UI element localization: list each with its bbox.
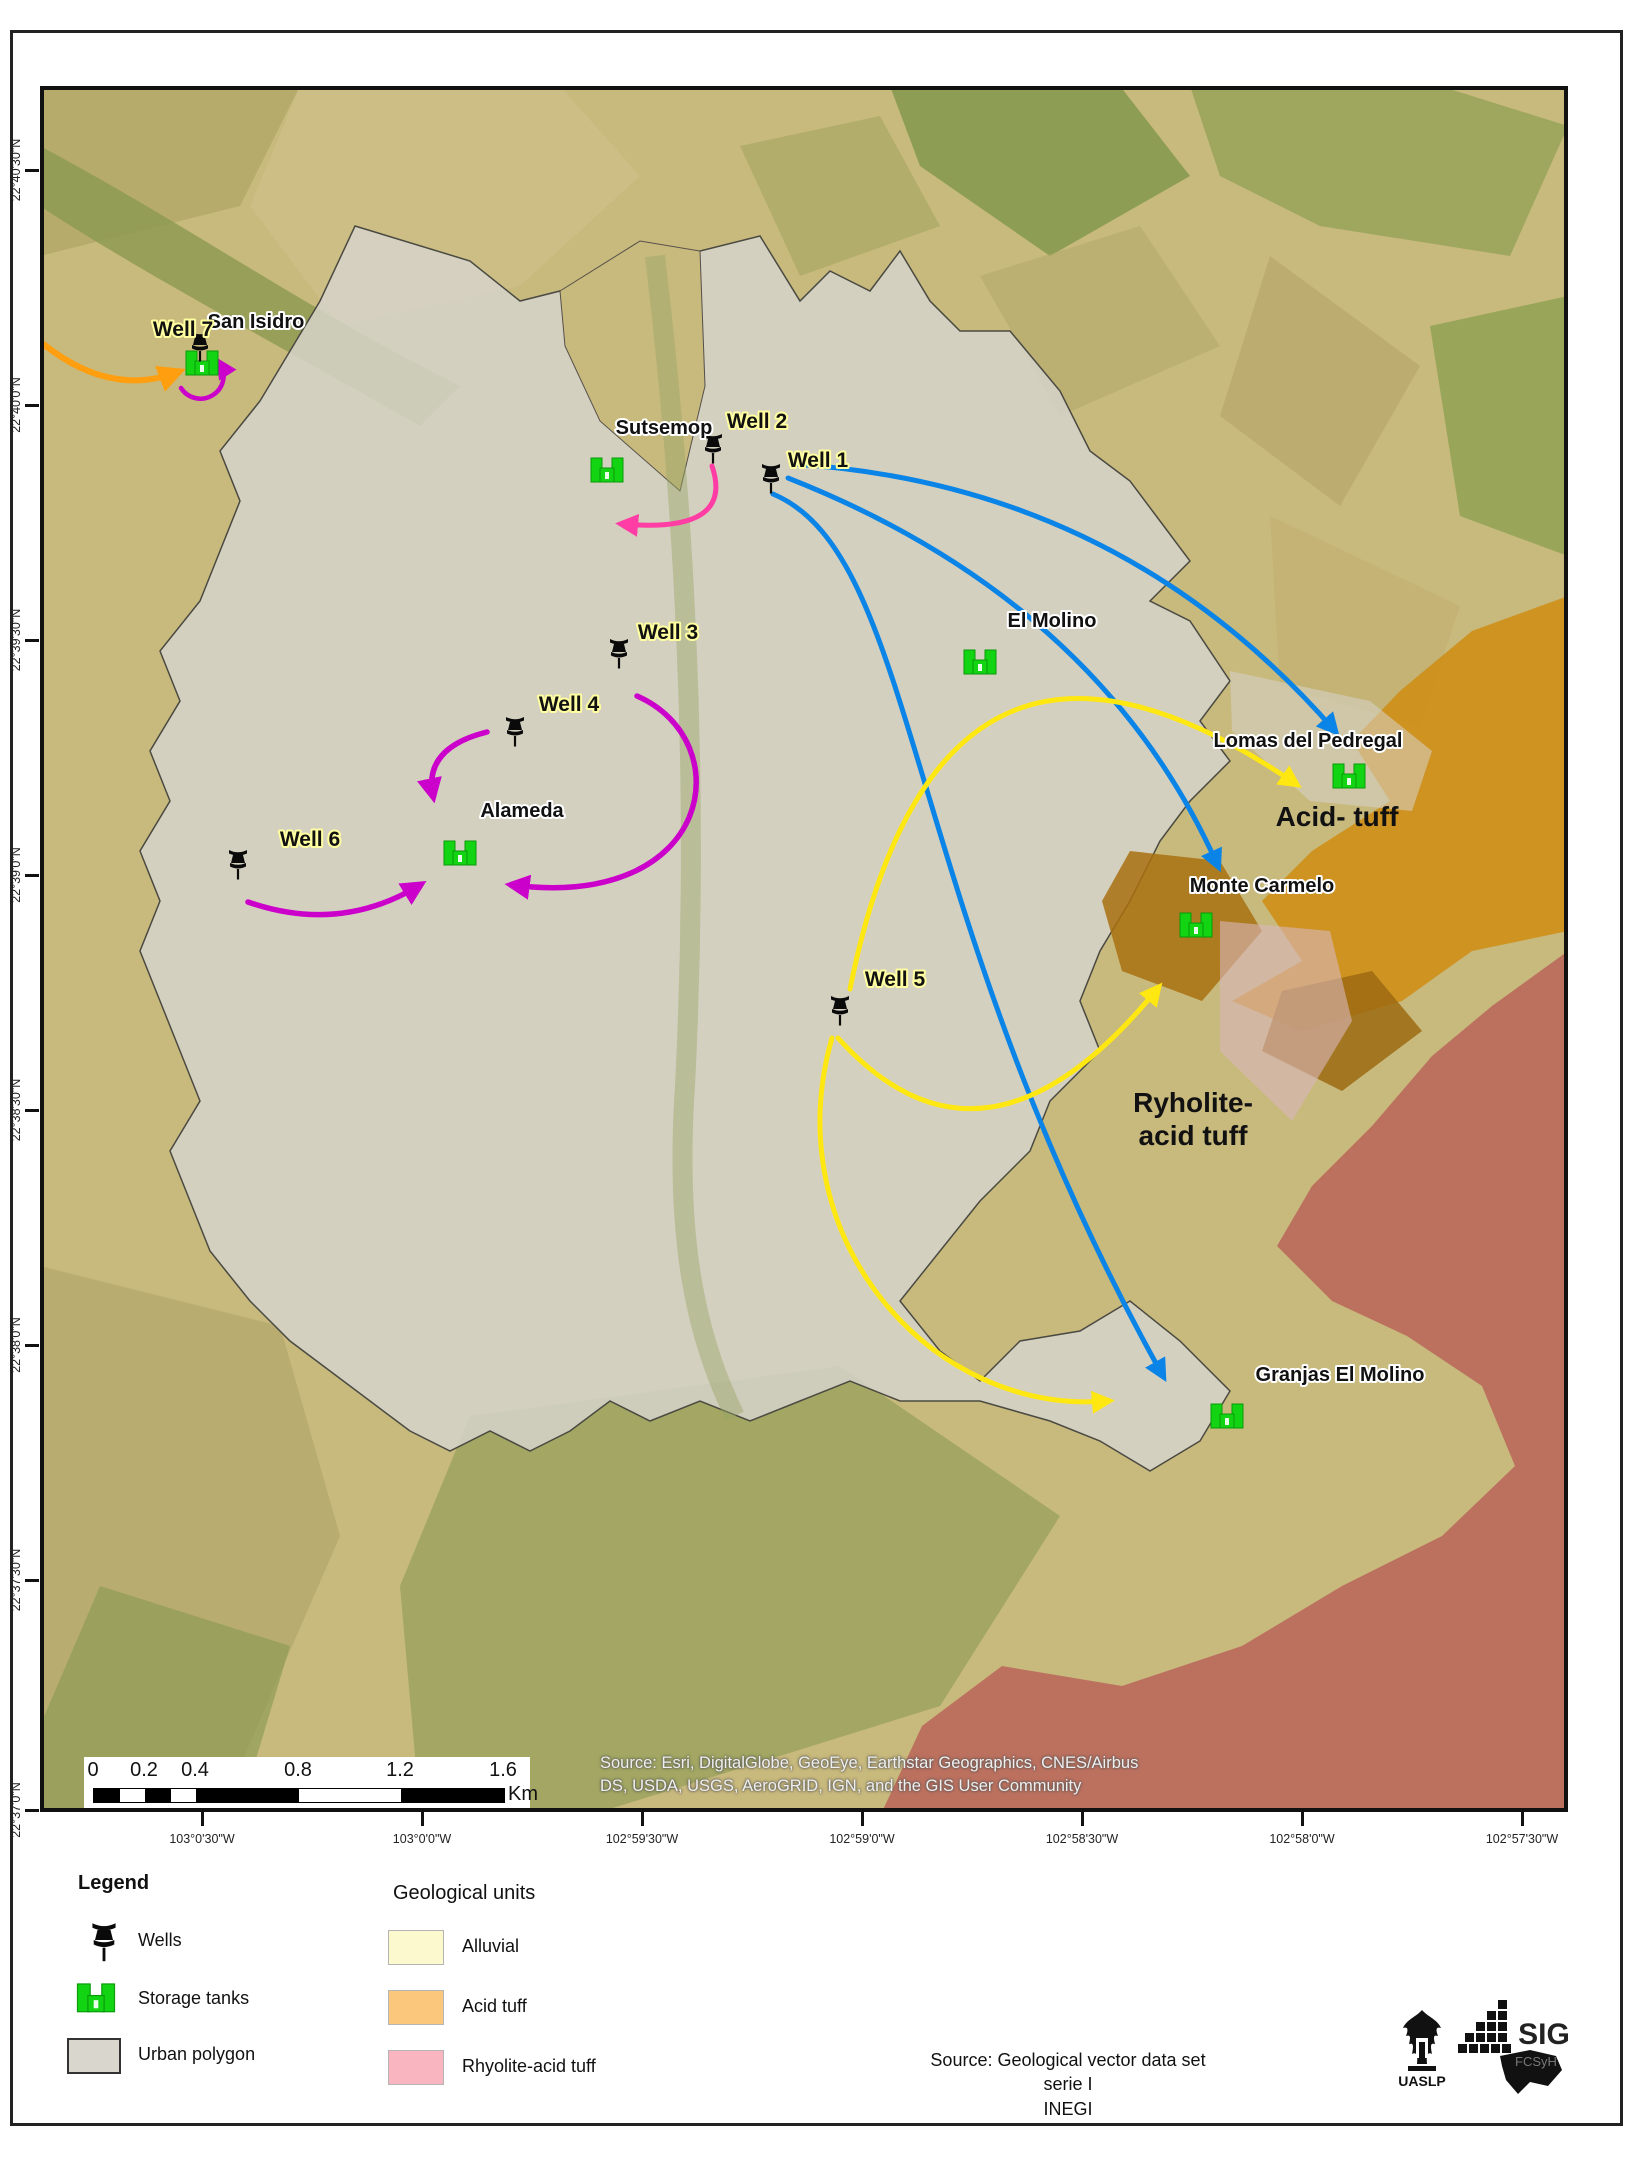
- scale-bar: 00.20.40.81.21.6 Km: [84, 1757, 530, 1808]
- sig-fcsyh-logo: SIG FCSyH: [1458, 2000, 1576, 2096]
- x-tick-mark: [1521, 1810, 1524, 1826]
- legend-rhyolite-swatch: [388, 2050, 444, 2085]
- legend-item-alluvial: Alluvial: [462, 1936, 519, 1957]
- y-tick-mark: [25, 169, 39, 172]
- svg-text:FCSyH: FCSyH: [1515, 2054, 1557, 2069]
- x-tick-label: 103°0'0"W: [393, 1832, 451, 1846]
- place-label-sutsemop: Sutsemop: [616, 417, 713, 439]
- y-tick-label: 22°38'30"N: [9, 1079, 23, 1142]
- y-tick-label: 22°39'30"N: [9, 609, 23, 672]
- x-tick-mark: [1081, 1810, 1084, 1826]
- scale-bar-tick: 1.2: [386, 1759, 414, 1782]
- x-tick-label: 102°58'30"W: [1046, 1832, 1118, 1846]
- scale-bar-segments: [93, 1788, 505, 1803]
- legend-item-rhyolite-acid-tuff: Rhyolite-acid tuff: [462, 2056, 596, 2077]
- x-tick-label: 102°57'30"W: [1486, 1832, 1558, 1846]
- place-label-san-isidro: San Isidro: [208, 311, 305, 333]
- y-tick-mark: [25, 1809, 39, 1812]
- legend-item-wells: Wells: [138, 1930, 182, 1951]
- y-tick-mark: [25, 1344, 39, 1347]
- legend-storage-tank-icon: [74, 1980, 118, 2018]
- x-tick-label: 102°59'0"W: [829, 1832, 894, 1846]
- x-tick-label: 102°59'30"W: [606, 1832, 678, 1846]
- place-label-el-molino: El Molino: [1008, 610, 1097, 632]
- place-label-lomas-del-pedregal: Lomas del Pedregal: [1214, 730, 1403, 752]
- imagery-attribution: Source: Esri, DigitalGlobe, GeoEye, Eart…: [600, 1752, 1410, 1798]
- x-tick-mark: [1301, 1810, 1304, 1826]
- geology-label-acid-tuff: acid tuff: [1139, 1120, 1249, 1151]
- page: San IsidroSutsemopEl MolinoAlamedaLomas …: [0, 0, 1645, 2162]
- legend-title: Legend: [78, 1872, 149, 1895]
- y-tick-label: 22°37'30"N: [9, 1549, 23, 1612]
- scale-bar-tick: 0.2: [130, 1759, 158, 1782]
- well-label-well-4: Well 4: [539, 693, 600, 716]
- y-tick-label: 22°38'0"N: [9, 1317, 23, 1373]
- geology-label-acid-tuff: Acid- tuff: [1276, 801, 1400, 832]
- scale-bar-tick: 1.6: [489, 1759, 517, 1782]
- y-tick-label: 22°40'0"N: [9, 377, 23, 433]
- scale-bar-tick: 0.8: [284, 1759, 312, 1782]
- well-label-well-6: Well 6: [280, 828, 340, 851]
- y-tick-mark: [25, 874, 39, 877]
- x-tick-label: 102°58'0"W: [1269, 1832, 1334, 1846]
- geology-label-ryholite-: Ryholite-: [1133, 1087, 1253, 1118]
- geology-source: Source: Geological vector data set serie…: [868, 2048, 1268, 2121]
- x-tick-label: 103°0'30"W: [169, 1832, 234, 1846]
- x-tick-mark: [201, 1810, 204, 1826]
- x-tick-mark: [641, 1810, 644, 1826]
- y-tick-mark: [25, 1579, 39, 1582]
- uaslp-logo: UASLP: [1396, 2008, 1448, 2102]
- well-label-well-5: Well 5: [865, 968, 926, 991]
- well-label-well-1: Well 1: [788, 449, 849, 472]
- place-label-granjas-el-molino: Granjas El Molino: [1256, 1364, 1425, 1386]
- scale-bar-tick: 0: [87, 1759, 98, 1782]
- y-tick-label: 22°39'0"N: [9, 847, 23, 903]
- legend-item-storage-tanks: Storage tanks: [138, 1988, 249, 2009]
- scale-bar-tick: 0.4: [181, 1759, 209, 1782]
- geological-units-title: Geological units: [393, 1882, 535, 1905]
- y-tick-mark: [25, 1109, 39, 1112]
- y-tick-label: 22°40'30"N: [9, 139, 23, 202]
- legend-item-acid-tuff: Acid tuff: [462, 1996, 527, 2017]
- place-label-monte-carmelo: Monte Carmelo: [1190, 875, 1334, 897]
- x-tick-mark: [421, 1810, 424, 1826]
- well-label-well-3: Well 3: [638, 621, 698, 644]
- legend-item-urban-polygon: Urban polygon: [138, 2044, 255, 2065]
- legend-urban-polygon-swatch: [67, 2038, 121, 2074]
- y-tick-mark: [25, 639, 39, 642]
- place-label-alameda: Alameda: [480, 800, 564, 822]
- x-tick-mark: [861, 1810, 864, 1826]
- svg-text:SIG: SIG: [1518, 2018, 1570, 2051]
- map-canvas: San IsidroSutsemopEl MolinoAlamedaLomas …: [40, 86, 1568, 1812]
- svg-text:UASLP: UASLP: [1398, 2073, 1445, 2089]
- legend-acid-tuff-swatch: [388, 1990, 444, 2025]
- legend-well-pin-icon: [86, 1918, 122, 1962]
- well-label-well-2: Well 2: [727, 410, 787, 433]
- y-tick-label: 22°37'0"N: [9, 1782, 23, 1838]
- scale-bar-unit: Km: [508, 1783, 538, 1806]
- legend-alluvial-swatch: [388, 1930, 444, 1965]
- well-label-well-7: Well 7: [153, 318, 213, 341]
- y-tick-mark: [25, 404, 39, 407]
